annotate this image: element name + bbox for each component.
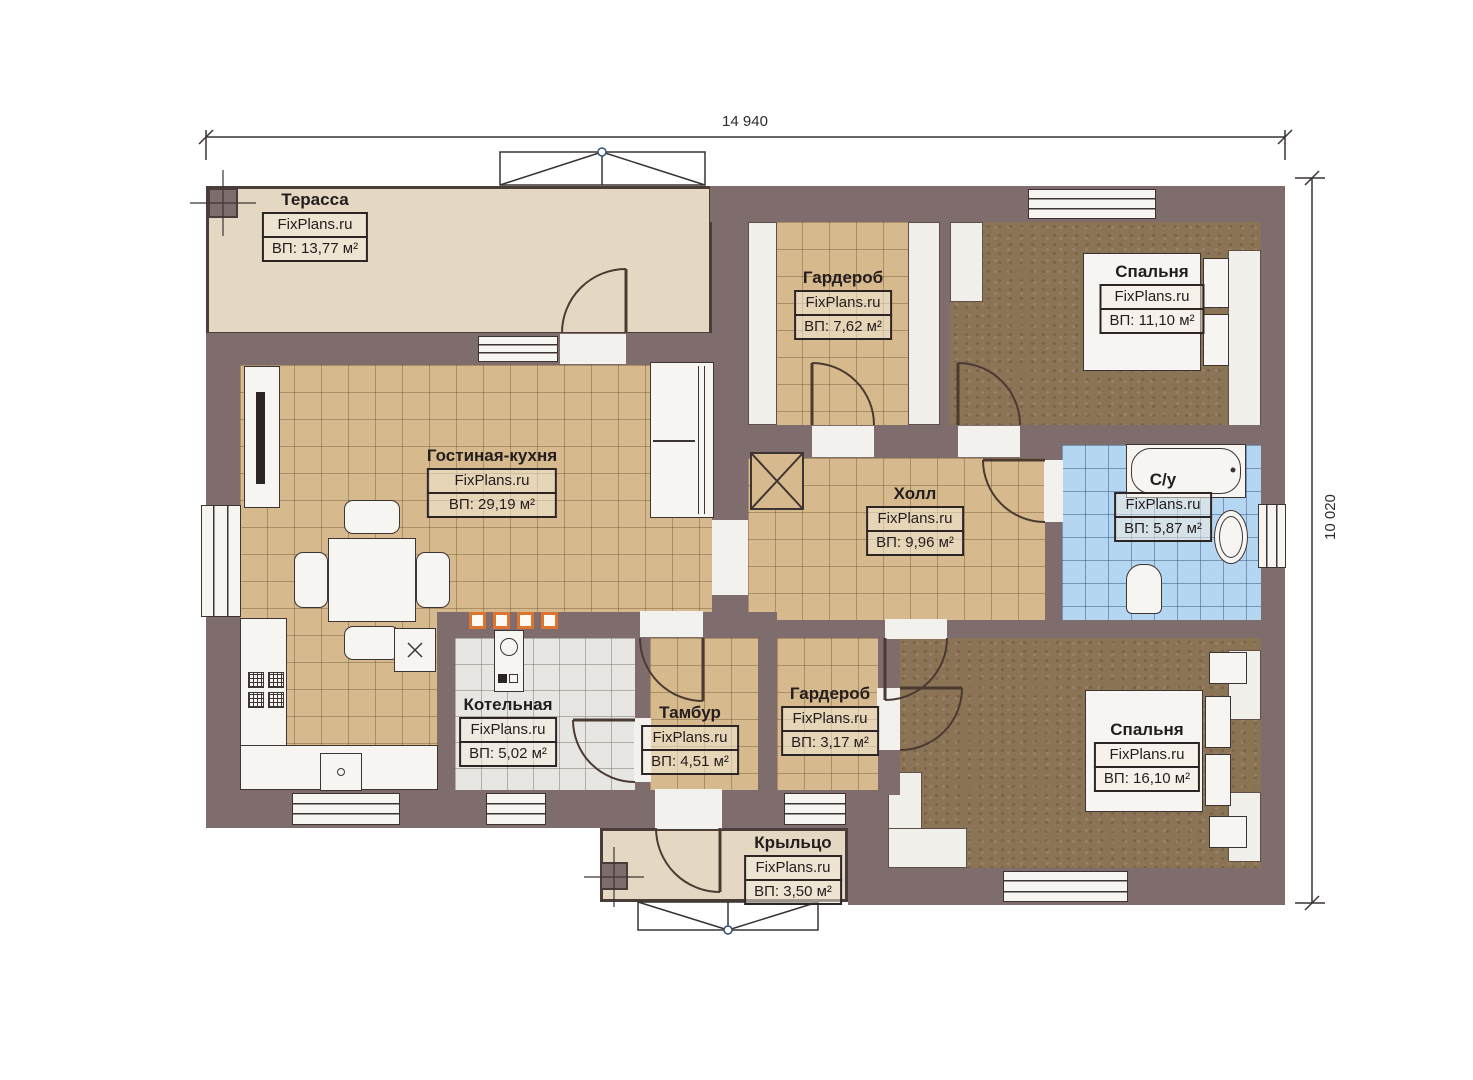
brand-badge: FixPlans.ru bbox=[459, 717, 557, 743]
window-bedroom-bottom bbox=[1003, 871, 1128, 902]
room-label-wardrobe-top: Гардероб FixPlans.ru ВП: 7,62 м² bbox=[794, 268, 892, 340]
door-gap-terrace bbox=[560, 334, 626, 364]
window-boiler-bottom bbox=[486, 793, 546, 825]
room-label-porch: Крыльцо FixPlans.ru ВП: 3,50 м² bbox=[744, 833, 842, 905]
closet-wardrobe-top-left bbox=[748, 222, 777, 425]
bed-bottom-pillow-1 bbox=[1205, 696, 1231, 748]
room-name: Крыльцо bbox=[744, 833, 842, 853]
stairs-terrace bbox=[500, 148, 705, 185]
opening-living-hall bbox=[712, 520, 748, 595]
door-gap-bathroom bbox=[1044, 460, 1063, 522]
closet-bedroom-bottom-L-horizontal bbox=[888, 828, 967, 868]
tv bbox=[256, 392, 265, 484]
window-wardrobe-bottom bbox=[784, 793, 846, 825]
stairs-porch bbox=[638, 902, 818, 934]
wall-hall-bottom bbox=[748, 620, 1261, 638]
corner-post-porch bbox=[600, 862, 628, 890]
window-left bbox=[201, 505, 241, 617]
room-area: ВП: 13,77 м² bbox=[262, 236, 368, 262]
bathroom-sink bbox=[1214, 510, 1248, 564]
sofa-seat-divider bbox=[653, 440, 695, 442]
room-area: ВП: 16,10 м² bbox=[1094, 766, 1200, 792]
dimension-right-line bbox=[1295, 171, 1325, 910]
nightstand-bottom bbox=[1209, 816, 1247, 848]
room-area: ВП: 29,19 м² bbox=[427, 492, 557, 518]
closet-bedroom-top-right bbox=[1228, 250, 1261, 428]
brand-badge: FixPlans.ru bbox=[1099, 284, 1204, 310]
room-name: Гардероб bbox=[781, 684, 879, 704]
wall-top bbox=[710, 186, 1285, 222]
window-top bbox=[1028, 189, 1156, 219]
brand-badge: FixPlans.ru bbox=[866, 506, 964, 532]
sofa bbox=[650, 362, 714, 518]
bed-top-pillow-1 bbox=[1203, 258, 1229, 308]
brand-badge: FixPlans.ru bbox=[1094, 742, 1200, 768]
room-name: С/у bbox=[1114, 470, 1212, 490]
room-area: ВП: 5,02 м² bbox=[459, 741, 557, 767]
dimension-width-label: 14 940 bbox=[722, 113, 768, 130]
door-gap-wardrobe-bottom bbox=[877, 688, 900, 750]
room-label-wardrobe-bottom: Гардероб FixPlans.ru ВП: 3,17 м² bbox=[781, 684, 879, 756]
heater-segment-1 bbox=[469, 612, 486, 629]
brand-badge: FixPlans.ru bbox=[744, 855, 842, 881]
heater-segment-3 bbox=[517, 612, 534, 629]
chair-right bbox=[416, 552, 450, 608]
room-label-hall: Холл FixPlans.ru ВП: 9,96 м² bbox=[866, 484, 964, 556]
dining-table bbox=[328, 538, 416, 622]
boiler-switch-light bbox=[509, 674, 518, 683]
stove-burner-3 bbox=[248, 692, 264, 708]
boiler-switch-dark bbox=[498, 674, 507, 683]
dimension-top-line bbox=[199, 130, 1292, 160]
door-gap-vestibule bbox=[640, 611, 703, 637]
room-name: Спальня bbox=[1094, 720, 1200, 740]
brand-badge: FixPlans.ru bbox=[262, 212, 368, 238]
room-label-bathroom: С/у FixPlans.ru ВП: 5,87 м² bbox=[1114, 470, 1212, 542]
chair-left bbox=[294, 552, 328, 608]
closet-wardrobe-top-right bbox=[908, 222, 940, 425]
room-area: ВП: 7,62 м² bbox=[794, 314, 892, 340]
door-gap-wardrobe-top bbox=[812, 426, 874, 457]
stove-burner-4 bbox=[268, 692, 284, 708]
brand-badge: FixPlans.ru bbox=[427, 468, 557, 494]
kitchen-sink-drain bbox=[337, 768, 345, 776]
brand-badge: FixPlans.ru bbox=[641, 725, 739, 751]
room-area: ВП: 5,87 м² bbox=[1114, 516, 1212, 542]
room-area: ВП: 9,96 м² bbox=[866, 530, 964, 556]
chair-bottom bbox=[344, 626, 400, 660]
door-gap-entrance bbox=[655, 789, 722, 829]
room-area: ВП: 11,10 м² bbox=[1099, 308, 1204, 334]
bathroom-sink-basin bbox=[1219, 516, 1243, 558]
boiler-dial bbox=[500, 638, 518, 656]
corner-post-terrace bbox=[208, 188, 238, 218]
room-label-bedroom-bottom: Спальня FixPlans.ru ВП: 16,10 м² bbox=[1094, 720, 1200, 792]
room-label-terrace: Терасса FixPlans.ru ВП: 13,77 м² bbox=[262, 190, 368, 262]
wall-bathroom-top bbox=[1045, 425, 1261, 445]
room-area: ВП: 4,51 м² bbox=[641, 749, 739, 775]
toilet bbox=[1126, 564, 1162, 614]
dishwasher bbox=[394, 628, 436, 672]
room-label-bedroom-top: Спальня FixPlans.ru ВП: 11,10 м² bbox=[1099, 262, 1204, 334]
room-name: Гардероб bbox=[794, 268, 892, 288]
stove-burner-1 bbox=[248, 672, 264, 688]
room-area: ВП: 3,50 м² bbox=[744, 879, 842, 905]
wall-boiler-left bbox=[437, 638, 455, 790]
brand-badge: FixPlans.ru bbox=[781, 706, 879, 732]
room-name: Тамбур bbox=[641, 703, 739, 723]
heater-segment-4 bbox=[541, 612, 558, 629]
floor-plan: 14 940 10 020 Терасса FixPlans.ru ВП: 13… bbox=[0, 0, 1473, 1080]
door-gap-bedroom-top bbox=[958, 426, 1020, 457]
nightstand-top bbox=[1209, 652, 1247, 684]
dimension-height-label: 10 020 bbox=[1322, 494, 1339, 540]
room-name: Холл bbox=[866, 484, 964, 504]
room-name: Спальня bbox=[1099, 262, 1204, 282]
room-area: ВП: 3,17 м² bbox=[781, 730, 879, 756]
bed-top-pillow-2 bbox=[1203, 314, 1229, 366]
window-kitchen-bottom bbox=[292, 793, 400, 825]
room-label-boiler: Котельная FixPlans.ru ВП: 5,02 м² bbox=[459, 695, 557, 767]
room-label-living-kitchen: Гостиная-кухня FixPlans.ru ВП: 29,19 м² bbox=[427, 446, 557, 518]
window-bathroom-right bbox=[1258, 504, 1286, 568]
door-gap-bedroom-bottom bbox=[885, 619, 947, 639]
room-name: Гостиная-кухня bbox=[427, 446, 557, 466]
brand-badge: FixPlans.ru bbox=[794, 290, 892, 316]
window-terrace-door-side bbox=[478, 336, 558, 362]
wall-porch-right bbox=[848, 828, 888, 905]
stove-burner-2 bbox=[268, 672, 284, 688]
heater-segment-2 bbox=[493, 612, 510, 629]
chair-top bbox=[344, 500, 400, 534]
wall-wardrobe-bedroom bbox=[940, 222, 950, 425]
brand-badge: FixPlans.ru bbox=[1114, 492, 1212, 518]
wall-living-top bbox=[206, 333, 712, 365]
bed-bottom-pillow-2 bbox=[1205, 754, 1231, 806]
sofa-backrest bbox=[698, 366, 705, 514]
room-name: Терасса bbox=[262, 190, 368, 210]
hall-closet bbox=[750, 452, 804, 510]
wall-vestibule-wardrobe bbox=[758, 612, 777, 795]
room-label-vestibule: Тамбур FixPlans.ru ВП: 4,51 м² bbox=[641, 703, 739, 775]
room-name: Котельная bbox=[459, 695, 557, 715]
closet-bedroom-top-left bbox=[950, 222, 983, 302]
